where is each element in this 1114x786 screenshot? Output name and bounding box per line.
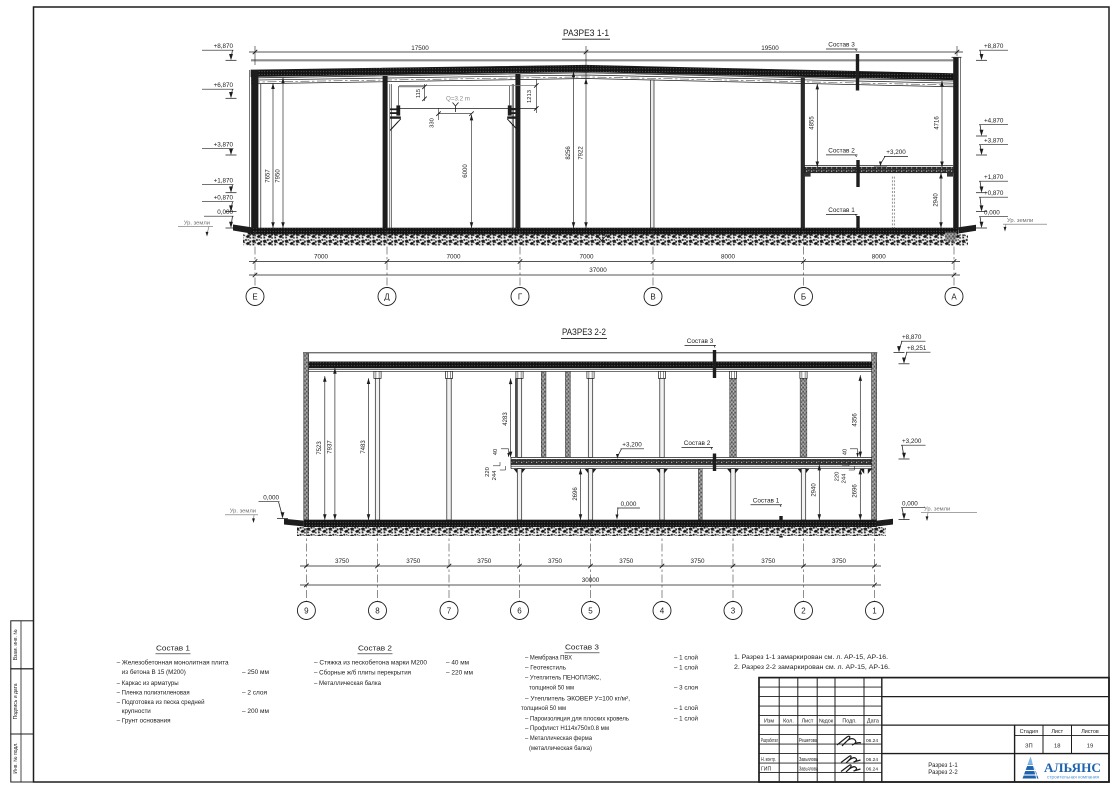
svg-text:7937: 7937 (327, 440, 333, 454)
svg-text:Состав 1: Состав 1 (156, 646, 190, 653)
svg-text:8000: 8000 (872, 254, 887, 261)
svg-text:Кол.: Кол. (783, 718, 794, 724)
svg-text:4855: 4855 (810, 116, 816, 130)
svg-text:3750: 3750 (335, 558, 350, 565)
svg-text:– 2 слоя: – 2 слоя (242, 689, 268, 696)
svg-text:– 40 мм: – 40 мм (446, 659, 469, 666)
svg-text:3: 3 (731, 607, 736, 616)
svg-text:1: 1 (872, 607, 877, 616)
svg-text:– Металлическая ферма: – Металлическая ферма (525, 735, 592, 742)
svg-text:– Мембрана ПВХ: – Мембрана ПВХ (525, 654, 573, 662)
svg-text:Ур. земли: Ур. земли (184, 220, 210, 226)
svg-text:Разрез 1-1: Разрез 1-1 (928, 763, 958, 769)
svg-text:толщиной 50 мм: толщиной 50 мм (521, 704, 566, 712)
svg-text:4283: 4283 (503, 412, 509, 426)
svg-text:3750: 3750 (406, 558, 421, 565)
svg-text:30000: 30000 (582, 577, 600, 584)
svg-text:8000: 8000 (721, 254, 736, 261)
svg-text:– 1 слой: – 1 слой (674, 704, 698, 712)
svg-text:Состав 1: Состав 1 (828, 207, 855, 214)
svg-text:– 1 слой: – 1 слой (674, 654, 698, 662)
svg-text:0,000: 0,000 (984, 210, 1000, 217)
svg-text:Подпись и дата: Подпись и дата (13, 683, 19, 719)
svg-text:РАЗРЕЗ 1-1: РАЗРЕЗ 1-1 (563, 28, 609, 38)
svg-text:– Металлическая балка: – Металлическая балка (314, 679, 381, 687)
svg-text:06.24: 06.24 (866, 738, 878, 744)
svg-text:+1,870: +1,870 (984, 174, 1004, 181)
svg-text:Решетова: Решетова (799, 738, 817, 744)
svg-text:7922: 7922 (578, 146, 584, 160)
svg-text:4356: 4356 (853, 413, 859, 427)
svg-text:+8,870: +8,870 (984, 43, 1004, 50)
svg-text:– Стяжка из пескобетона марки: – Стяжка из пескобетона марки М200 (314, 658, 427, 666)
svg-text:Состав 2: Состав 2 (358, 646, 392, 653)
svg-text:18: 18 (1054, 744, 1060, 750)
svg-text:Состав 3: Состав 3 (565, 645, 599, 652)
svg-text:7657: 7657 (266, 169, 272, 183)
svg-text:+3,870: +3,870 (214, 142, 234, 149)
svg-text:4: 4 (660, 607, 665, 616)
svg-text:Состав 3: Состав 3 (687, 338, 714, 345)
svg-text:– Сборные ж/б плиты перекрытия: – Сборные ж/б плиты перекрытия (314, 669, 412, 677)
svg-text:крупности: крупности (122, 708, 151, 715)
svg-text:Изм: Изм (764, 718, 774, 724)
svg-text:В: В (650, 293, 655, 302)
svg-text:6000: 6000 (463, 164, 469, 178)
svg-text:3750: 3750 (477, 558, 492, 565)
svg-text:9: 9 (304, 607, 309, 616)
svg-text:40: 40 (842, 449, 848, 455)
svg-text:8256: 8256 (566, 146, 572, 160)
svg-text:АЛЬЯНС: АЛЬЯНС (1044, 760, 1101, 775)
svg-text:– 3 слоя: – 3 слоя (674, 684, 699, 691)
svg-text:– 220 мм: – 220 мм (446, 670, 473, 677)
svg-text:+3,870: +3,870 (984, 138, 1004, 145)
svg-text:Состав 3: Состав 3 (828, 42, 855, 49)
svg-text:2: 2 (801, 607, 806, 616)
svg-text:3750: 3750 (832, 558, 847, 565)
svg-text:ЗП: ЗП (1025, 744, 1033, 750)
svg-text:220: 220 (834, 472, 840, 482)
svg-text:1213: 1213 (527, 90, 533, 103)
svg-text:+8,251: +8,251 (907, 345, 927, 352)
svg-text:17500: 17500 (411, 45, 429, 52)
svg-text:2940: 2940 (933, 193, 939, 207)
svg-text:– 1 слой: – 1 слой (674, 664, 698, 672)
svg-text:3750: 3750 (619, 558, 634, 565)
svg-text:1. Разрез 1-1 замаркирован см.: 1. Разрез 1-1 замаркирован см. л. АР-15,… (734, 654, 888, 661)
svg-text:06.24: 06.24 (866, 766, 878, 772)
svg-text:2696: 2696 (573, 487, 579, 501)
svg-text:4716: 4716 (934, 116, 940, 130)
svg-text:7000: 7000 (446, 254, 461, 261)
svg-text:8: 8 (375, 607, 380, 616)
svg-text:Ур. земли: Ур. земли (924, 507, 950, 513)
svg-text:19500: 19500 (761, 45, 779, 52)
svg-text:– Геотекстиль: – Геотекстиль (525, 665, 567, 672)
svg-text:Состав 1: Состав 1 (753, 497, 780, 504)
svg-text:220: 220 (485, 467, 491, 477)
svg-text:– Утеплитель ЭКОВЕР У=100 кг/м: – Утеплитель ЭКОВЕР У=100 кг/м², (525, 695, 630, 702)
svg-text:Завьялова: Завьялова (799, 766, 818, 772)
svg-text:0,000: 0,000 (621, 501, 637, 508)
svg-text:+6,870: +6,870 (214, 82, 234, 89)
svg-text:7523: 7523 (317, 441, 323, 455)
svg-text:– Подготовка из песка средней: – Подготовка из песка средней (117, 698, 205, 706)
svg-text:3750: 3750 (548, 558, 563, 565)
svg-text:244: 244 (842, 473, 848, 483)
svg-text:7000: 7000 (579, 254, 594, 261)
svg-text:+8,870: +8,870 (902, 334, 922, 341)
svg-text:– Утеплитель ПЕНОПЛЭКС,: – Утеплитель ПЕНОПЛЭКС, (525, 675, 601, 682)
svg-text:330: 330 (430, 118, 436, 128)
svg-text:– Пароизоляция для плоских кро: – Пароизоляция для плоских кровель (525, 715, 630, 722)
svg-text:Завьялова: Завьялова (799, 757, 818, 763)
svg-text:Е: Е (252, 293, 257, 302)
svg-text:2696: 2696 (853, 484, 859, 498)
svg-text:Инв. № подл.: Инв. № подл. (13, 742, 19, 773)
svg-text:Разработал: Разработал (761, 738, 778, 744)
svg-text:– Каркас из арматуры: – Каркас из арматуры (117, 680, 179, 687)
svg-text:РАЗРЕЗ 2-2: РАЗРЕЗ 2-2 (562, 327, 606, 337)
svg-text:37000: 37000 (589, 267, 607, 274)
svg-text:5: 5 (588, 607, 593, 616)
svg-text:0,000: 0,000 (902, 501, 918, 508)
svg-text:2940: 2940 (812, 483, 818, 497)
svg-text:Состав 2: Состав 2 (684, 440, 711, 447)
svg-text:+3,200: +3,200 (902, 438, 922, 445)
svg-text:– 250 мм: – 250 мм (242, 669, 269, 676)
svg-text:+4,870: +4,870 (984, 118, 1004, 125)
svg-text:7483: 7483 (361, 440, 367, 454)
svg-text:Лист: Лист (802, 718, 814, 724)
svg-text:– 1 слой: – 1 слой (674, 714, 698, 722)
svg-text:Разрез 2-2: Разрез 2-2 (928, 770, 958, 776)
svg-text:Стадия: Стадия (1020, 729, 1038, 735)
svg-text:Б: Б (801, 293, 806, 302)
svg-text:Д: Д (384, 293, 390, 302)
svg-text:3750: 3750 (690, 558, 705, 565)
svg-text:Дата: Дата (867, 718, 879, 724)
svg-text:Взам. инв. №: Взам. инв. № (13, 629, 19, 660)
svg-text:6: 6 (517, 607, 522, 616)
svg-text:из бетона В 15 (М200): из бетона В 15 (М200) (122, 668, 186, 676)
svg-text:+3,200: +3,200 (622, 442, 642, 449)
svg-text:+0,870: +0,870 (984, 190, 1004, 197)
svg-text:ГИП: ГИП (761, 766, 772, 772)
svg-text:Г: Г (518, 293, 523, 302)
svg-text:115: 115 (416, 89, 422, 98)
svg-text:№док: №док (819, 718, 834, 724)
svg-text:А: А (951, 293, 957, 302)
svg-text:19: 19 (1087, 744, 1093, 750)
svg-text:строительная компания: строительная компания (1047, 775, 1099, 780)
svg-text:– Железобетонная монолитная п: – Железобетонная монолитная плита (117, 658, 229, 666)
svg-text:06.24: 06.24 (866, 757, 878, 763)
svg-text:2. Разрез 2-2 замаркирован см.: 2. Разрез 2-2 замаркирован см. л. АР-15,… (734, 664, 890, 671)
svg-text:толщиной 50 мм: толщиной 50 мм (529, 683, 574, 691)
svg-text:7000: 7000 (314, 254, 329, 261)
svg-text:244: 244 (492, 470, 498, 480)
svg-text:Q=3.2 m: Q=3.2 m (446, 96, 470, 103)
svg-text:– Грунт основания: – Грунт основания (117, 717, 172, 724)
svg-text:Н. контр.: Н. контр. (761, 757, 776, 763)
svg-text:+1,870: +1,870 (214, 178, 234, 185)
svg-text:Состав 2: Состав 2 (828, 148, 855, 155)
svg-text:Ур. земли: Ур. земли (1007, 218, 1033, 224)
svg-text:Лист: Лист (1051, 729, 1063, 735)
svg-text:7: 7 (447, 607, 452, 616)
svg-text:+0,870: +0,870 (214, 195, 234, 202)
svg-text:40: 40 (493, 449, 499, 455)
svg-text:7950: 7950 (276, 169, 282, 183)
svg-text:+3,200: +3,200 (886, 149, 906, 156)
svg-text:0,000: 0,000 (217, 209, 233, 216)
svg-text:– Профлист Н114х750х0.8 мм: – Профлист Н114х750х0.8 мм (525, 725, 609, 732)
svg-text:0,000: 0,000 (263, 495, 279, 502)
svg-text:Листов: Листов (1081, 729, 1099, 735)
svg-text:– 200 мм: – 200 мм (242, 708, 269, 715)
svg-text:Подп.: Подп. (842, 718, 856, 724)
svg-text:– Пленка полиэтиленовая: – Пленка полиэтиленовая (117, 689, 191, 696)
svg-text:(металлическая балка): (металлическая балка) (529, 744, 592, 752)
svg-text:3750: 3750 (761, 558, 776, 565)
svg-text:Ур. земли: Ур. земли (230, 509, 256, 515)
svg-text:+8,870: +8,870 (214, 43, 234, 50)
